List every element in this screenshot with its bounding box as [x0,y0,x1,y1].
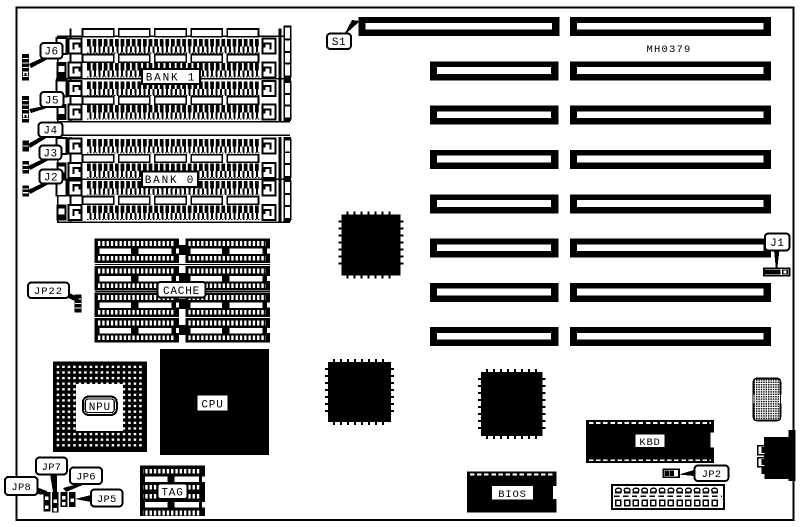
svg-text:JP2: JP2 [702,469,722,481]
svg-text:BANK 1: BANK 1 [146,72,196,84]
svg-text:KBD: KBD [639,437,660,449]
svg-text:J3: J3 [43,148,57,160]
svg-text:J6: J6 [44,47,58,59]
svg-text:J5: J5 [45,95,59,107]
svg-text:JP8: JP8 [11,482,31,494]
svg-text:J2: J2 [44,172,58,184]
svg-text:MH0379: MH0379 [646,44,691,56]
svg-text:BANK 0: BANK 0 [145,175,195,187]
svg-text:J1: J1 [770,238,784,250]
svg-text:TAG: TAG [161,487,183,499]
svg-text:BIOS: BIOS [498,489,526,501]
svg-text:NPU: NPU [89,402,111,414]
svg-text:JP5: JP5 [97,494,117,506]
svg-text:JP7: JP7 [42,462,62,474]
svg-text:JP6: JP6 [76,472,96,484]
svg-text:S1: S1 [332,37,346,49]
svg-text:CACHE: CACHE [163,286,200,298]
svg-text:J4: J4 [43,126,57,138]
svg-text:JP22: JP22 [34,286,63,298]
svg-text:CPU: CPU [201,399,223,411]
